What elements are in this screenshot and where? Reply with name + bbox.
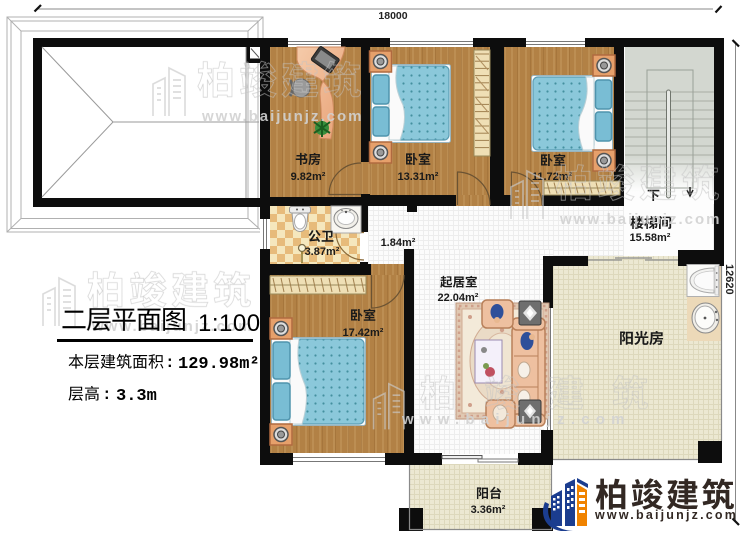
svg-text:129.98m²: 129.98m² xyxy=(178,355,260,374)
svg-text:15.58m²: 15.58m² xyxy=(630,232,671,244)
svg-text:3.3m: 3.3m xyxy=(116,387,157,406)
svg-text:17.42m²: 17.42m² xyxy=(343,327,384,339)
svg-text:18000: 18000 xyxy=(378,10,407,22)
svg-text:www.baijunjz.com: www.baijunjz.com xyxy=(401,411,631,428)
svg-text:3.87m²: 3.87m² xyxy=(305,246,340,258)
svg-text:3.36m²: 3.36m² xyxy=(471,504,506,516)
svg-text::: : xyxy=(165,354,175,372)
svg-text:1.84m²: 1.84m² xyxy=(381,237,416,249)
svg-text::: : xyxy=(102,386,112,404)
svg-text:12620: 12620 xyxy=(723,264,735,295)
svg-text:22.04m²: 22.04m² xyxy=(438,292,479,304)
svg-text:www.baijunjz.com: www.baijunjz.com xyxy=(559,211,721,228)
svg-text:www.baijunjz.com: www.baijunjz.com xyxy=(594,508,738,522)
svg-text:www.baijunjz.com: www.baijunjz.com xyxy=(201,108,363,125)
svg-text:9.82m²: 9.82m² xyxy=(291,171,326,183)
svg-text:1:100: 1:100 xyxy=(198,310,261,337)
svg-text:13.31m²: 13.31m² xyxy=(398,171,439,183)
